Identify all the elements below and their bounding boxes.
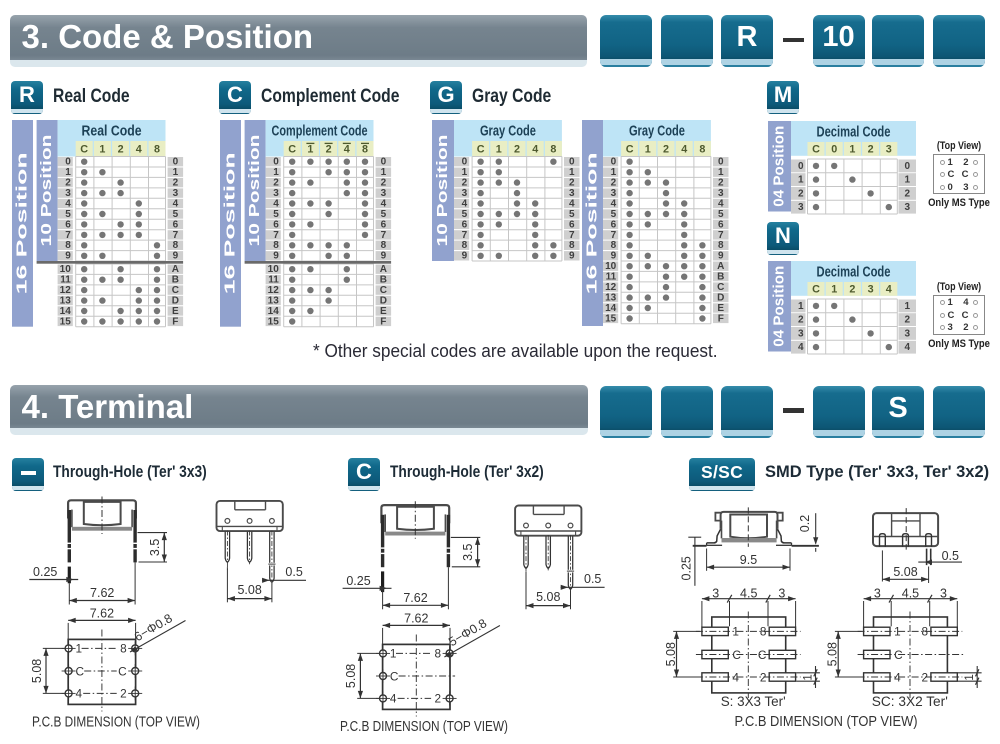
svg-text:2: 2 [798, 188, 804, 199]
svg-text:1: 1 [76, 642, 83, 656]
svg-text:9: 9 [380, 251, 386, 262]
svg-text:0: 0 [273, 157, 279, 168]
svg-text:14: 14 [59, 306, 71, 317]
svg-text:7: 7 [610, 230, 616, 241]
svg-text:3: 3 [610, 188, 616, 199]
svg-text:5: 5 [65, 209, 71, 220]
svg-text:6: 6 [273, 219, 279, 230]
svg-text:Real Code: Real Code [81, 123, 141, 140]
svg-text:0.5: 0.5 [584, 572, 601, 586]
svg-text:0.5: 0.5 [285, 565, 302, 579]
svg-text:5.08: 5.08 [893, 565, 917, 579]
svg-text:2: 2 [273, 178, 279, 189]
svg-text:1: 1 [894, 625, 901, 639]
svg-text:4: 4 [390, 692, 397, 706]
svg-text:5: 5 [273, 209, 279, 220]
svg-text:0.25: 0.25 [33, 565, 57, 579]
svg-text:Decimal Code: Decimal Code [817, 124, 891, 141]
svg-text:Complement Code: Complement Code [271, 123, 367, 140]
svg-text:3: 3 [717, 188, 723, 199]
svg-text:0: 0 [172, 157, 178, 168]
svg-text:1: 1 [802, 674, 814, 680]
svg-text:10: 10 [605, 261, 617, 272]
svg-text:3.5: 3.5 [461, 543, 475, 560]
svg-text:13: 13 [59, 295, 71, 306]
svg-text:4: 4 [273, 198, 279, 209]
svg-text:1: 1 [172, 167, 178, 178]
svg-text:1: 1 [798, 301, 804, 312]
svg-text:E: E [172, 306, 179, 317]
svg-text:10 Position: 10 Position [435, 135, 451, 247]
svg-text:2: 2 [380, 178, 386, 189]
svg-text:5: 5 [380, 209, 386, 220]
svg-text:3: 3 [172, 188, 178, 199]
svg-text:6: 6 [172, 219, 178, 230]
svg-text:3.5: 3.5 [148, 539, 162, 556]
svg-text:9: 9 [610, 251, 616, 262]
svg-text:1: 1 [307, 143, 313, 155]
svg-text:D: D [717, 292, 724, 303]
svg-text:13: 13 [605, 292, 617, 303]
svg-text:4: 4 [461, 198, 467, 209]
svg-text:7: 7 [273, 230, 279, 241]
svg-text:12: 12 [605, 282, 617, 293]
svg-text:1: 1 [273, 167, 279, 178]
svg-text:C: C [172, 285, 179, 296]
svg-text:7.62: 7.62 [403, 591, 427, 605]
svg-text:0: 0 [798, 161, 804, 172]
svg-text:0.5: 0.5 [942, 549, 959, 563]
svg-text:0: 0 [380, 157, 386, 168]
svg-text:6: 6 [610, 219, 616, 230]
svg-text:1: 1 [610, 167, 616, 178]
svg-text:2: 2 [461, 178, 467, 189]
svg-text:9: 9 [461, 251, 467, 262]
svg-text:8: 8 [922, 625, 929, 639]
svg-text:2: 2 [717, 178, 723, 189]
svg-text:8: 8 [172, 240, 178, 251]
svg-text:11: 11 [268, 275, 279, 286]
svg-text:Decimal Code: Decimal Code [817, 264, 891, 281]
svg-text:9: 9 [569, 251, 575, 262]
svg-text:4: 4 [380, 198, 386, 209]
svg-text:8: 8 [760, 625, 767, 639]
svg-text:P.C.B DIMENSION (TOP VIEW): P.C.B DIMENSION (TOP VIEW) [340, 718, 508, 735]
svg-text:C: C [732, 648, 741, 662]
svg-text:2: 2 [120, 687, 127, 701]
svg-text:1: 1 [798, 175, 804, 186]
svg-text:8: 8 [717, 240, 723, 251]
svg-text:15: 15 [605, 313, 617, 324]
svg-text:6: 6 [569, 219, 575, 230]
svg-text:3: 3 [273, 188, 279, 199]
svg-text:8: 8 [569, 240, 575, 251]
svg-text:1: 1 [964, 674, 976, 680]
svg-text:0.25: 0.25 [680, 556, 694, 580]
svg-text:10: 10 [267, 264, 279, 275]
svg-text:7.62: 7.62 [404, 612, 428, 626]
svg-text:D: D [172, 295, 179, 306]
svg-text:5.08: 5.08 [30, 659, 44, 683]
svg-text:7: 7 [569, 230, 575, 241]
svg-text:0.2: 0.2 [798, 515, 812, 532]
svg-text:11: 11 [605, 272, 616, 283]
svg-text:7: 7 [717, 230, 723, 241]
svg-text:C: C [625, 143, 633, 155]
svg-text:2: 2 [760, 670, 767, 684]
svg-text:C: C [80, 143, 88, 155]
svg-text:13: 13 [267, 295, 279, 306]
svg-text:3: 3 [904, 202, 910, 213]
svg-text:4: 4 [798, 342, 804, 353]
svg-text:1: 1 [904, 175, 910, 186]
svg-text:8: 8 [65, 240, 71, 251]
svg-text:2: 2 [849, 284, 855, 296]
svg-text:0: 0 [65, 157, 71, 168]
svg-text:4: 4 [610, 198, 616, 209]
svg-text:3: 3 [380, 188, 386, 199]
svg-text:B: B [379, 275, 386, 286]
svg-text:C: C [894, 648, 903, 662]
svg-text:SC: 3X2 Ter': SC: 3X2 Ter' [872, 694, 948, 710]
svg-text:4: 4 [136, 143, 142, 155]
svg-text:6: 6 [65, 219, 71, 230]
svg-text:2: 2 [325, 143, 331, 155]
svg-text:5: 5 [610, 209, 616, 220]
svg-text:7: 7 [380, 230, 386, 241]
svg-text:D: D [379, 295, 386, 306]
svg-text:5: 5 [172, 209, 178, 220]
svg-text:P.C.B DIMENSION (TOP VIEW): P.C.B DIMENSION (TOP VIEW) [32, 713, 200, 730]
svg-text:0: 0 [904, 161, 910, 172]
svg-text:C: C [118, 664, 127, 678]
svg-text:0: 0 [717, 157, 723, 168]
svg-text:2: 2 [662, 143, 668, 155]
svg-text:8: 8 [361, 143, 367, 155]
svg-text:2: 2 [172, 178, 178, 189]
svg-text:16 Position: 16 Position [14, 152, 30, 294]
svg-text:2: 2 [798, 315, 804, 326]
svg-text:15: 15 [267, 316, 279, 327]
svg-text:F: F [380, 316, 386, 327]
svg-text:2: 2 [904, 315, 910, 326]
svg-text:1: 1 [849, 143, 855, 155]
svg-text:4: 4 [717, 198, 723, 209]
svg-text:4: 4 [76, 687, 83, 701]
svg-text:0: 0 [610, 157, 616, 168]
svg-text:2: 2 [868, 143, 874, 155]
svg-text:16 Position: 16 Position [222, 152, 238, 294]
svg-text:7: 7 [65, 230, 71, 241]
svg-text:A: A [379, 264, 386, 275]
svg-text:8: 8 [273, 240, 279, 251]
svg-text:8: 8 [550, 143, 556, 155]
svg-text:S: 3X3 Ter': S: 3X3 Ter' [721, 694, 786, 710]
svg-text:Gray Code: Gray Code [628, 123, 684, 140]
svg-text:7: 7 [172, 230, 178, 241]
svg-text:14: 14 [267, 306, 279, 317]
svg-text:8: 8 [120, 642, 127, 656]
svg-text:2: 2 [610, 178, 616, 189]
svg-text:7.62: 7.62 [90, 586, 114, 600]
svg-text:4: 4 [569, 198, 575, 209]
svg-text:1: 1 [644, 143, 650, 155]
svg-text:4: 4 [732, 670, 739, 684]
svg-text:C: C [76, 664, 85, 678]
svg-text:C: C [758, 648, 767, 662]
svg-text:04 Position: 04 Position [772, 266, 788, 347]
svg-text:8: 8 [380, 240, 386, 251]
svg-text:0.25: 0.25 [346, 574, 370, 588]
svg-text:8: 8 [699, 143, 705, 155]
svg-text:16 Position: 16 Position [584, 152, 600, 294]
svg-text:C: C [288, 143, 296, 155]
svg-text:6: 6 [461, 219, 467, 230]
svg-text:B: B [172, 275, 179, 286]
svg-text:5.08: 5.08 [237, 583, 261, 597]
svg-text:6: 6 [380, 219, 386, 230]
svg-text:10: 10 [59, 264, 71, 275]
svg-text:6: 6 [717, 219, 723, 230]
svg-text:E: E [380, 306, 387, 317]
svg-text:14: 14 [605, 303, 617, 314]
svg-text:F: F [172, 316, 178, 327]
svg-text:3: 3 [65, 188, 71, 199]
svg-text:5: 5 [717, 209, 723, 220]
svg-text:4: 4 [532, 143, 538, 155]
svg-text:Gray Code: Gray Code [480, 123, 536, 140]
svg-text:1: 1 [99, 143, 105, 155]
svg-text:12: 12 [59, 285, 71, 296]
svg-text:C: C [390, 669, 399, 683]
svg-text:2: 2 [514, 143, 520, 155]
svg-text:1: 1 [380, 167, 386, 178]
svg-text:8: 8 [435, 647, 442, 661]
svg-text:1: 1 [65, 167, 71, 178]
svg-text:1: 1 [461, 167, 467, 178]
svg-text:2: 2 [904, 188, 910, 199]
svg-text:3: 3 [868, 284, 874, 296]
svg-text:1: 1 [904, 301, 910, 312]
svg-text:5.08: 5.08 [344, 664, 358, 688]
svg-text:5: 5 [569, 209, 575, 220]
svg-text:3: 3 [798, 202, 804, 213]
svg-text:P.C.B DIMENSION (TOP VIEW): P.C.B DIMENSION (TOP VIEW) [735, 713, 918, 730]
svg-text:5.08: 5.08 [664, 642, 678, 666]
svg-text:1: 1 [569, 167, 575, 178]
svg-text:10 Position: 10 Position [39, 135, 55, 247]
svg-text:1: 1 [390, 647, 397, 661]
svg-text:4: 4 [681, 143, 687, 155]
svg-text:2: 2 [117, 143, 123, 155]
svg-text:7: 7 [461, 230, 467, 241]
svg-text:0: 0 [569, 157, 575, 168]
svg-text:0: 0 [461, 157, 467, 168]
svg-text:9: 9 [172, 251, 178, 262]
svg-text:3: 3 [569, 188, 575, 199]
svg-text:1: 1 [717, 167, 723, 178]
svg-text:E: E [717, 303, 724, 314]
svg-text:C: C [812, 143, 820, 155]
svg-text:5.08: 5.08 [826, 642, 840, 666]
svg-text:8: 8 [610, 240, 616, 251]
svg-text:5.08: 5.08 [536, 590, 560, 604]
svg-text:11: 11 [60, 275, 71, 286]
svg-text:8: 8 [461, 240, 467, 251]
svg-text:8: 8 [154, 143, 160, 155]
svg-text:10 Position: 10 Position [247, 135, 263, 247]
svg-text:04 Position: 04 Position [772, 126, 788, 207]
svg-text:9: 9 [273, 251, 279, 262]
svg-text:4: 4 [894, 670, 901, 684]
svg-text:2: 2 [569, 178, 575, 189]
svg-text:12: 12 [267, 285, 279, 296]
svg-text:3: 3 [886, 143, 892, 155]
svg-text:4: 4 [886, 284, 892, 296]
svg-text:2: 2 [65, 178, 71, 189]
svg-text:F: F [717, 313, 723, 324]
svg-text:3: 3 [461, 188, 467, 199]
svg-text:9: 9 [65, 251, 71, 262]
svg-text:4: 4 [904, 342, 910, 353]
svg-text:C: C [476, 143, 484, 155]
svg-text:7.62: 7.62 [90, 607, 114, 621]
svg-text:A: A [172, 264, 179, 275]
svg-text:5: 5 [461, 209, 467, 220]
svg-text:4: 4 [65, 198, 71, 209]
svg-text:1: 1 [732, 625, 739, 639]
svg-text:C: C [717, 282, 724, 293]
svg-text:B: B [717, 272, 724, 283]
svg-text:2: 2 [435, 692, 442, 706]
svg-text:9: 9 [717, 251, 723, 262]
svg-text:3: 3 [798, 329, 804, 340]
svg-text:3: 3 [904, 329, 910, 340]
svg-text:C: C [379, 285, 386, 296]
svg-text:1: 1 [831, 284, 837, 296]
svg-text:1: 1 [495, 143, 501, 155]
svg-text:4: 4 [343, 143, 349, 155]
svg-text:15: 15 [59, 316, 71, 327]
svg-text:A: A [717, 261, 724, 272]
svg-text:4: 4 [172, 198, 178, 209]
svg-text:C: C [812, 284, 820, 296]
svg-text:2: 2 [922, 670, 929, 684]
svg-text:9.5: 9.5 [740, 553, 757, 567]
svg-text:0: 0 [831, 143, 837, 155]
